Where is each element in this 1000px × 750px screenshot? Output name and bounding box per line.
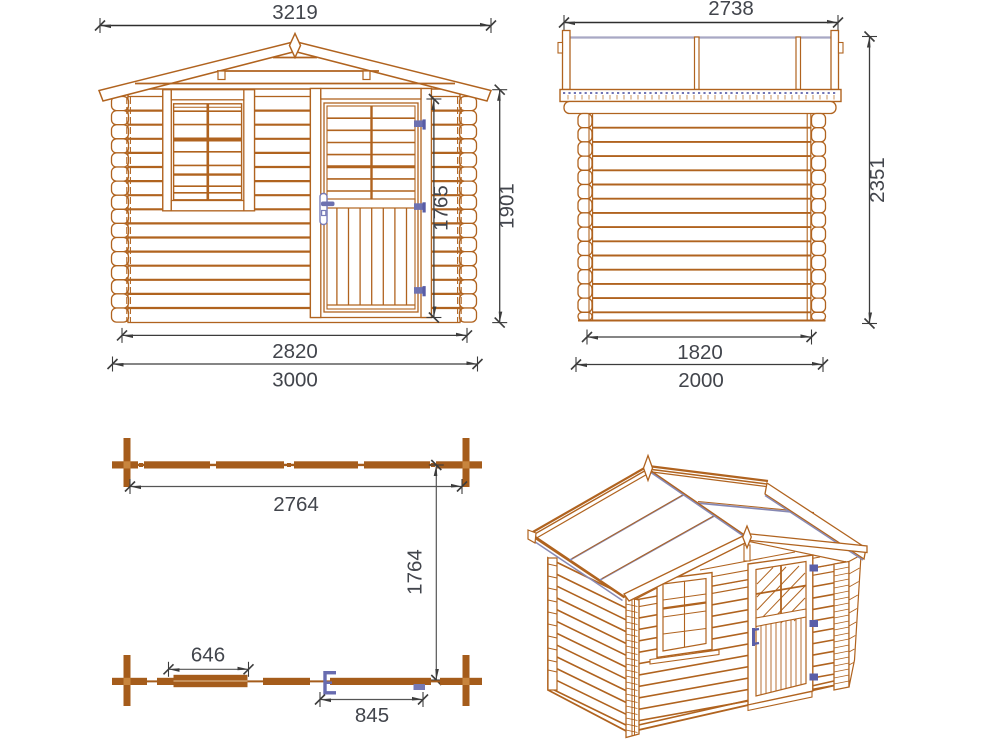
svg-text:1764: 1764 <box>404 549 427 595</box>
svg-text:3219: 3219 <box>272 1 318 24</box>
svg-text:2764: 2764 <box>273 493 319 516</box>
svg-text:646: 646 <box>191 644 225 667</box>
svg-text:2738: 2738 <box>708 0 754 20</box>
svg-text:1901: 1901 <box>496 183 519 229</box>
svg-text:2000: 2000 <box>678 369 724 392</box>
svg-text:2820: 2820 <box>272 340 318 363</box>
svg-text:845: 845 <box>355 704 389 727</box>
svg-text:3000: 3000 <box>272 369 318 392</box>
svg-text:2351: 2351 <box>866 157 889 203</box>
svg-text:1765: 1765 <box>430 185 453 231</box>
svg-text:1820: 1820 <box>677 341 723 364</box>
